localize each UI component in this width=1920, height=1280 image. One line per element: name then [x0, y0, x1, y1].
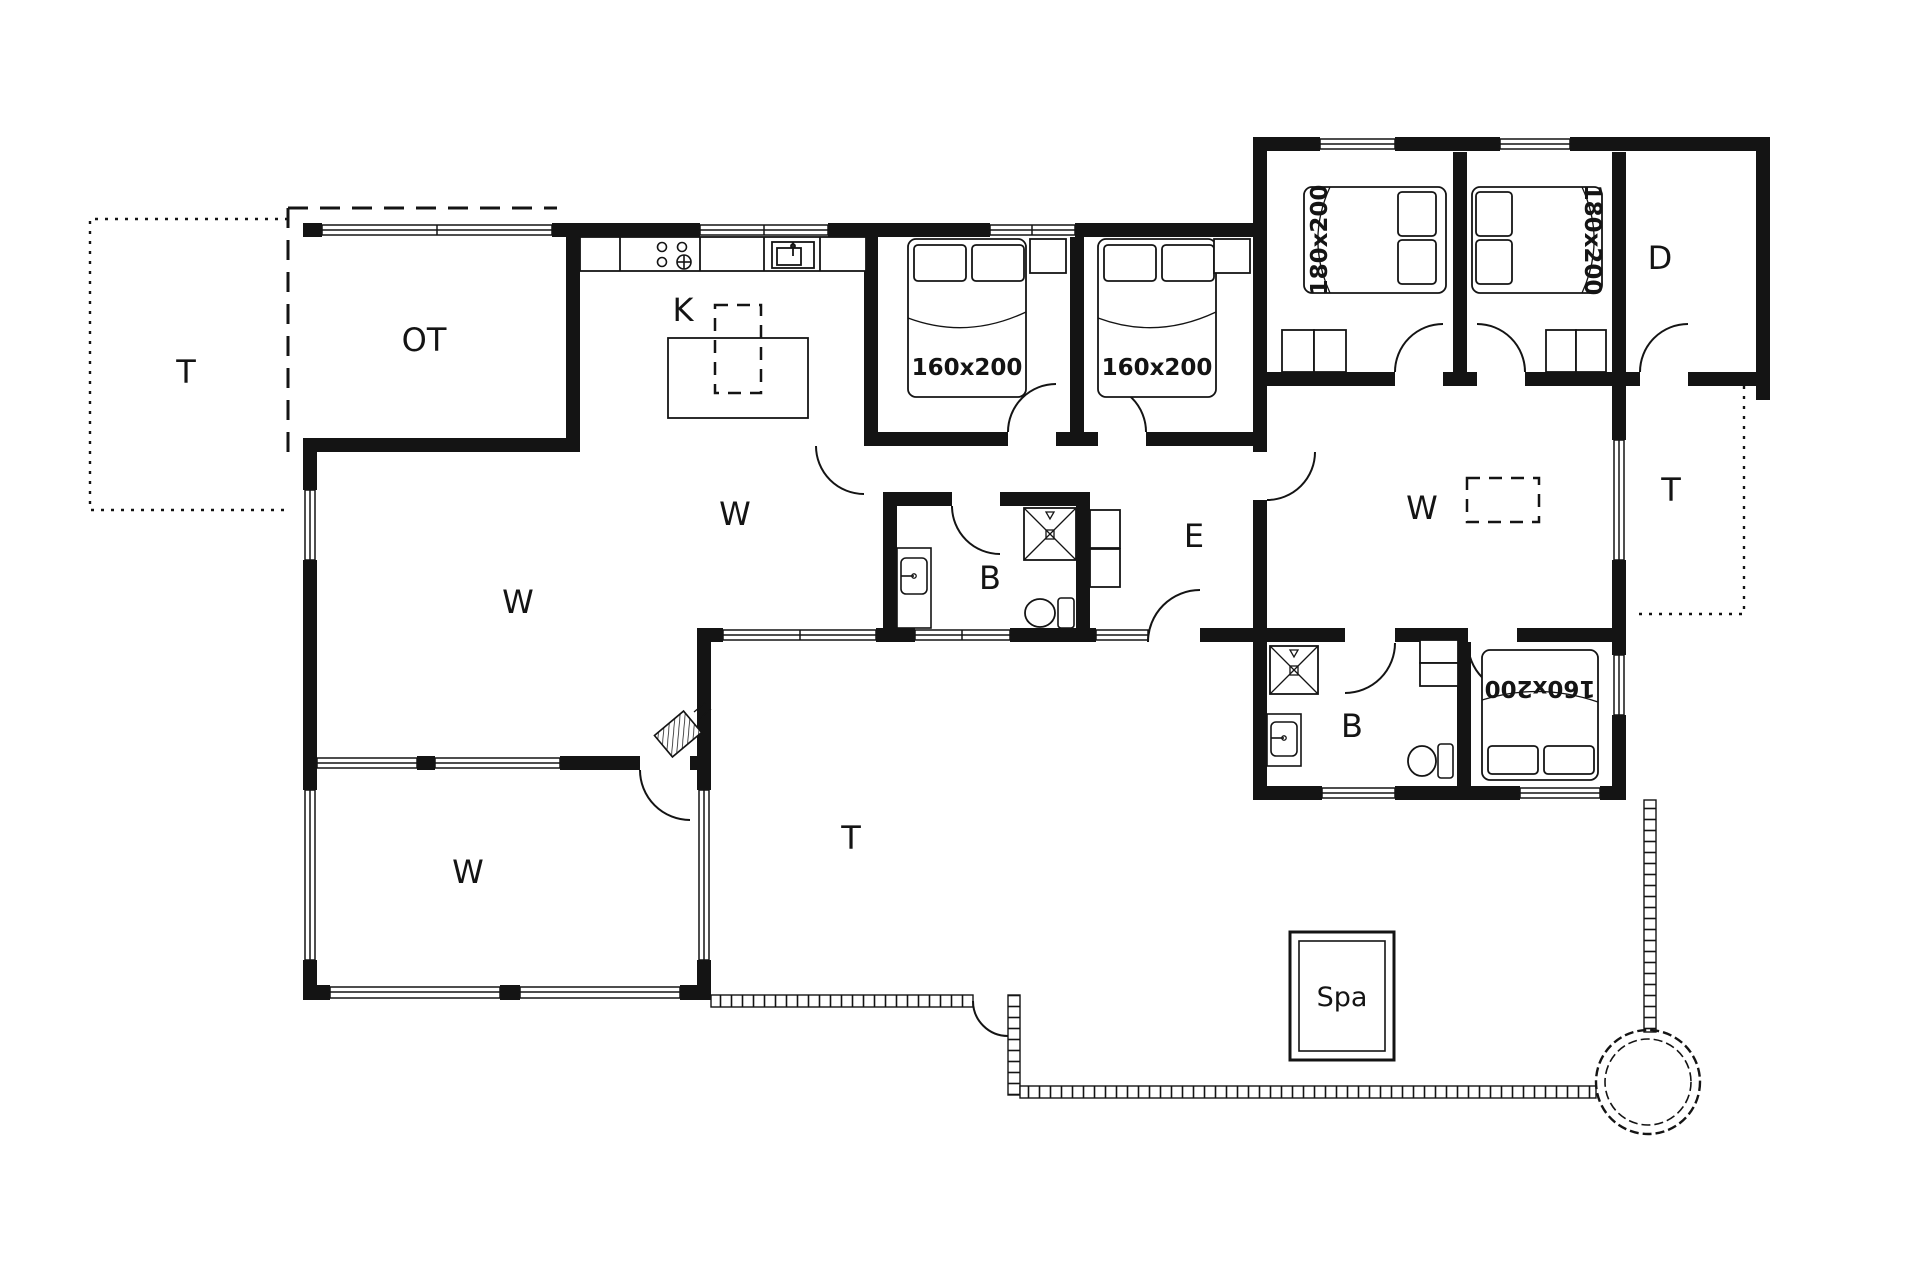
- door-living-right: [1267, 452, 1315, 500]
- washbasin-icon: [897, 548, 931, 628]
- washbasin-icon: [1267, 714, 1301, 766]
- room-label-covered-terrace: OT: [402, 321, 447, 359]
- room-label-terrace-right: T: [1660, 471, 1681, 509]
- kitchen-counter: [580, 237, 866, 271]
- window: [990, 225, 1075, 235]
- window: [1614, 655, 1624, 715]
- hot-tub-circle: [1596, 1030, 1700, 1134]
- window: [1500, 139, 1570, 149]
- room-label-bathroom-main: B: [979, 559, 1001, 597]
- room-label-conservatory: W: [452, 853, 484, 891]
- window: [700, 225, 828, 235]
- door-entrance: [1148, 590, 1200, 642]
- room-label-living-kitchen: W: [719, 495, 751, 533]
- terrace-left-outline: [90, 208, 557, 510]
- window: [1320, 139, 1395, 149]
- bed-size-label: 180x200: [1579, 185, 1605, 296]
- shower-icon: [1024, 508, 1076, 560]
- bed-size-label: 160x200: [1102, 355, 1213, 381]
- door-bathroom-right: [1345, 643, 1395, 693]
- bed-icon-bedroom1: 160x200: [908, 239, 1026, 397]
- bed-icon-bedroom2: 160x200: [1098, 239, 1216, 397]
- bed-size-label: 160x200: [912, 355, 1023, 381]
- kitchen-fixtures: [580, 237, 866, 418]
- room-label-room-d: D: [1648, 239, 1673, 277]
- terrace-right-outline: [1632, 386, 1744, 614]
- bed-icon-bedroom4: 180x200: [1472, 185, 1605, 296]
- door-bedroom4: [1477, 324, 1525, 372]
- room-label-entrance: E: [1184, 517, 1204, 555]
- toilet-icon: [1408, 744, 1453, 778]
- toilet-icon: [1025, 598, 1074, 628]
- room-label-kitchen: K: [673, 291, 695, 329]
- window: [699, 790, 709, 960]
- window: [322, 225, 552, 235]
- shower-icon: [1270, 646, 1318, 694]
- window: [1322, 788, 1395, 798]
- door-conservatory: [640, 770, 690, 820]
- room-label-terrace-bottom: T: [840, 819, 861, 857]
- kitchen-island: [668, 338, 808, 418]
- door-bedroom3: [1395, 324, 1443, 372]
- bed-size-label: 160x200: [1485, 675, 1596, 701]
- window: [915, 630, 1010, 640]
- room-label-terrace-left: T: [175, 353, 196, 391]
- window: [1520, 788, 1600, 798]
- floor-plan-page: 160x200 160x200 180x200 180x200 160x200: [0, 0, 1920, 1280]
- window: [520, 987, 680, 998]
- door-room-d: [1640, 324, 1688, 372]
- room-label-bathroom-right: B: [1341, 707, 1363, 745]
- table-dashed-icon: [1467, 478, 1539, 522]
- room-label-spa: Spa: [1317, 982, 1368, 1013]
- bed-size-label: 180x200: [1307, 185, 1333, 296]
- window: [305, 490, 315, 560]
- window: [305, 790, 315, 960]
- bed-icon-bedroom5: 160x200: [1482, 650, 1598, 780]
- door-hallway: [816, 446, 864, 494]
- window: [1096, 630, 1148, 640]
- door-bathroom-main: [952, 506, 1000, 554]
- window: [317, 758, 417, 768]
- room-label-living-left: W: [502, 583, 534, 621]
- window: [723, 630, 876, 640]
- window: [435, 758, 560, 768]
- gate-arc: [973, 1001, 1008, 1036]
- window: [330, 987, 500, 998]
- window: [1614, 440, 1624, 560]
- floor-plan-svg: 160x200 160x200 180x200 180x200 160x200: [0, 0, 1920, 1280]
- room-label-living-right: W: [1406, 489, 1438, 527]
- bed-icon-bedroom3: 180x200: [1304, 185, 1446, 296]
